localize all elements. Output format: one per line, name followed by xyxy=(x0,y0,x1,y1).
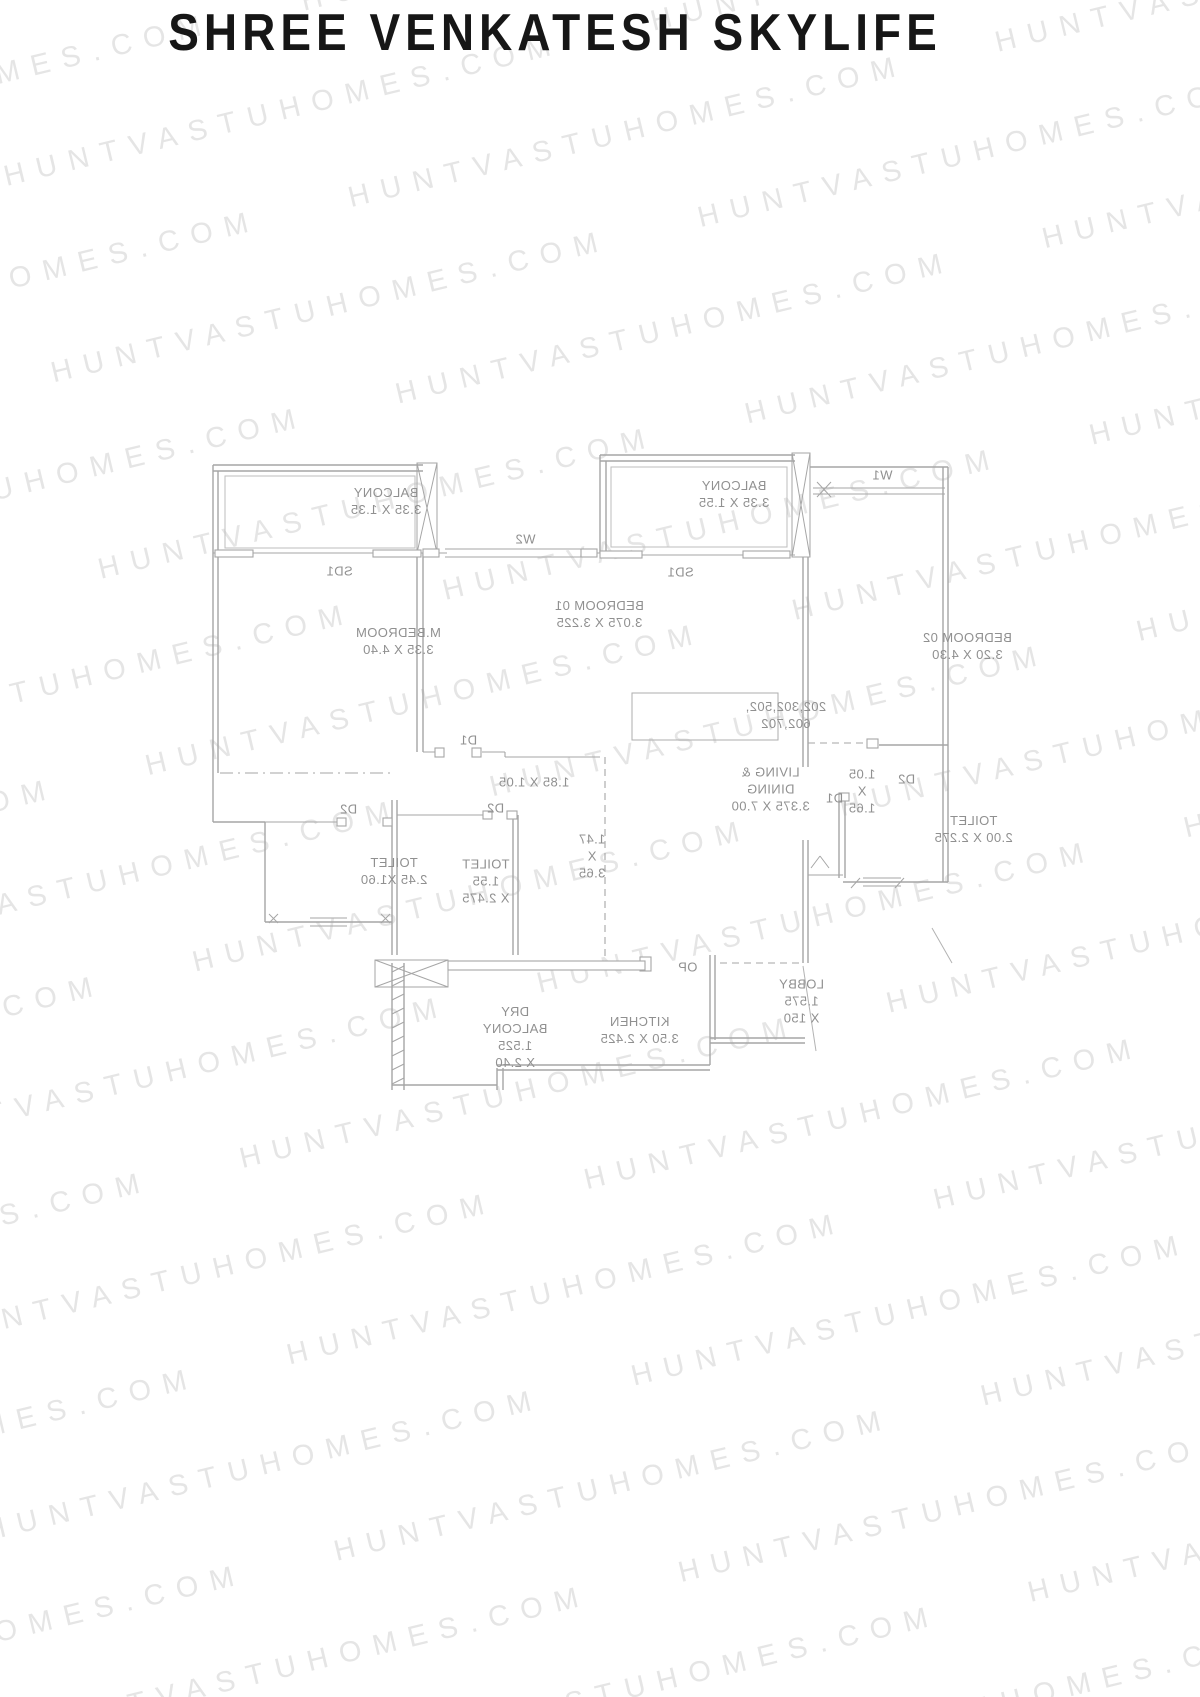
watermark-text: HUNTVASTUHOMES.COM xyxy=(0,772,60,938)
label-passage-185: 1.85 X 1.05 xyxy=(498,775,569,792)
watermark-text: HUNTVASTUHOMES.COM xyxy=(378,1599,943,1697)
label-sd1-left: SD1 xyxy=(326,564,353,581)
watermark-text: HUNTVASTUHOMES.COM xyxy=(0,969,108,1135)
label-m-bedroom: M.BEDROOM 3.35 X 4.40 xyxy=(356,625,441,659)
label-bedroom-02: BEDROOM 02 3.20 X 4.30 xyxy=(923,630,1012,664)
watermark-text: HUNTVASTUHOMES.COM xyxy=(722,1620,1200,1697)
watermark-text: HUNTVASTUHOMES.COM xyxy=(0,1558,249,1697)
watermark-text: HUNTVASTUHOMES.COM xyxy=(977,1248,1200,1414)
label-toilet-mid: TOILET 1.55 X 2.475 xyxy=(462,857,510,908)
watermark-text: HUNTVASTUHOMES.COM xyxy=(48,224,613,390)
label-balcony-left: BALCONY 3.35 X 1.35 xyxy=(350,485,421,519)
label-d2-left: D2 xyxy=(340,802,357,819)
watermark-text: HUNTVASTUHOMES.COM xyxy=(0,204,263,370)
label-d2-mid: D2 xyxy=(487,801,504,818)
label-balcony-mid: BALCONY 3.35 X 1.55 xyxy=(698,478,769,512)
watermark-text: HUNTVASTUHOMES.COM xyxy=(331,1403,896,1569)
watermark-text: HUNTVASTUHOMES.COM xyxy=(345,49,910,215)
watermark-text: HUNTVASTUHOMES.COM xyxy=(0,576,13,742)
page: HUNTVASTUHOMES.COMHUNTVASTUHOMES.COMHUNT… xyxy=(0,0,1200,1697)
label-d1-living: D1 xyxy=(826,791,843,808)
watermark-text: HUNTVASTUHOMES.COM xyxy=(0,1362,202,1528)
label-toilet-right: TOILET 2.00 X 2.275 xyxy=(934,813,1013,847)
watermark-text: HUNTVASTUHOMES.COM xyxy=(675,1424,1200,1590)
watermark-text: HUNTVASTUHOMES.COM xyxy=(0,1383,546,1549)
label-unit-numbers: 202,302,502, 602,702 xyxy=(745,699,826,733)
label-lobby: LOBBY 1.575 X 150 xyxy=(779,977,824,1028)
watermark-text: HUNTVASTUHOMES.COM xyxy=(1072,1640,1200,1697)
label-bedroom-01: BEDROOM 01 3.075 X 3.225 xyxy=(555,598,644,632)
watermark-text: HUNTVASTUHOMES.COM xyxy=(1180,679,1200,845)
watermark-text: HUNTVASTUHOMES.COM xyxy=(628,1228,1193,1394)
floorplan: BALCONY 3.35 X 1.35SD1W2BEDROOM 01 3.075… xyxy=(195,410,965,1090)
watermark-text: HUNTVASTUHOMES.COM xyxy=(0,1165,155,1331)
watermark-text: HUNTVASTUHOMES.COM xyxy=(930,1051,1200,1217)
label-passage-147: 1.47 X 3.65 xyxy=(578,832,605,883)
watermark-text: HUNTVASTUHOMES.COM xyxy=(0,1186,499,1352)
watermark-text: HUNTVASTUHOMES.COM xyxy=(742,265,1200,431)
label-op: OP xyxy=(678,960,698,977)
watermark-text: HUNTVASTUHOMES.COM xyxy=(1025,1444,1200,1610)
label-living-dining: LIVING & DINING 3.375 X 7.00 xyxy=(731,765,810,816)
floorplan-drawing xyxy=(195,410,965,1090)
label-sd1-mid: SD1 xyxy=(667,565,694,582)
label-passage-105: 1.05 X 1.65 xyxy=(848,767,875,818)
watermark-text: HUNTVASTUHOMES.COM xyxy=(28,1579,593,1697)
watermark-text: HUNTVASTUHOMES.COM xyxy=(695,69,1200,235)
watermark-text: HUNTVASTUHOMES.COM xyxy=(1086,287,1200,453)
door-jambs xyxy=(215,549,878,971)
label-w2: W2 xyxy=(515,532,535,549)
watermark-text: HUNTVASTUHOMES.COM xyxy=(392,245,957,411)
label-d2-right: D2 xyxy=(898,772,915,789)
kitchen-counter xyxy=(448,961,645,970)
watermark-text: HUNTVASTUHOMES.COM xyxy=(1039,90,1200,256)
label-d1-corridor: D1 xyxy=(460,733,477,750)
door-leaves xyxy=(803,928,952,1051)
watermark-text: HUNTVASTUHOMES.COM xyxy=(284,1206,849,1372)
label-w1: W1 xyxy=(872,468,892,485)
page-title: SHREE VENKATESH SKYLIFE xyxy=(0,2,1110,62)
label-dry-balcony: DRY BALCONY 1.525 X 2.40 xyxy=(482,1004,547,1072)
label-kitchen: KITCHEN 3.50 X 2.425 xyxy=(600,1014,679,1048)
watermark-text: HUNTVASTUHOMES.COM xyxy=(1133,483,1200,649)
label-toilet-left: TOILET 2.45 X1.60 xyxy=(360,855,427,889)
